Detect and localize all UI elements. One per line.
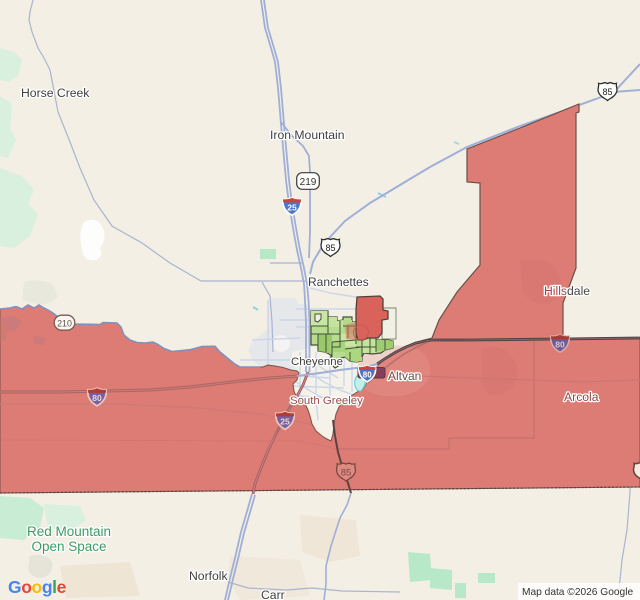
svg-text:85: 85 xyxy=(325,243,335,253)
svg-text:Horse Creek: Horse Creek xyxy=(21,86,90,100)
svg-text:Google: Google xyxy=(8,577,67,597)
svg-text:80: 80 xyxy=(363,370,372,379)
svg-text:85: 85 xyxy=(341,468,352,479)
svg-text:80: 80 xyxy=(92,393,102,403)
svg-text:80: 80 xyxy=(555,340,565,350)
svg-text:Altvan: Altvan xyxy=(388,369,421,383)
svg-text:25: 25 xyxy=(287,203,297,213)
svg-text:Ranchettes: Ranchettes xyxy=(308,275,369,289)
svg-text:210: 210 xyxy=(57,319,72,329)
svg-text:Hillsdale: Hillsdale xyxy=(544,284,590,298)
svg-text:Red Mountain: Red Mountain xyxy=(27,524,111,539)
svg-text:Arcola: Arcola xyxy=(564,390,599,404)
svg-text:Cheyenne: Cheyenne xyxy=(291,356,343,368)
svg-text:Open Space: Open Space xyxy=(31,539,106,554)
svg-text:85: 85 xyxy=(602,87,612,97)
svg-text:Carr: Carr xyxy=(261,588,285,600)
svg-text:219: 219 xyxy=(300,177,317,188)
svg-text:Iron Mountain: Iron Mountain xyxy=(270,128,345,142)
svg-text:Norfolk: Norfolk xyxy=(189,569,229,583)
svg-text:25: 25 xyxy=(280,417,290,427)
svg-text:South Greeley: South Greeley xyxy=(290,395,363,407)
svg-text:Map data ©2026 Google: Map data ©2026 Google xyxy=(522,587,633,598)
